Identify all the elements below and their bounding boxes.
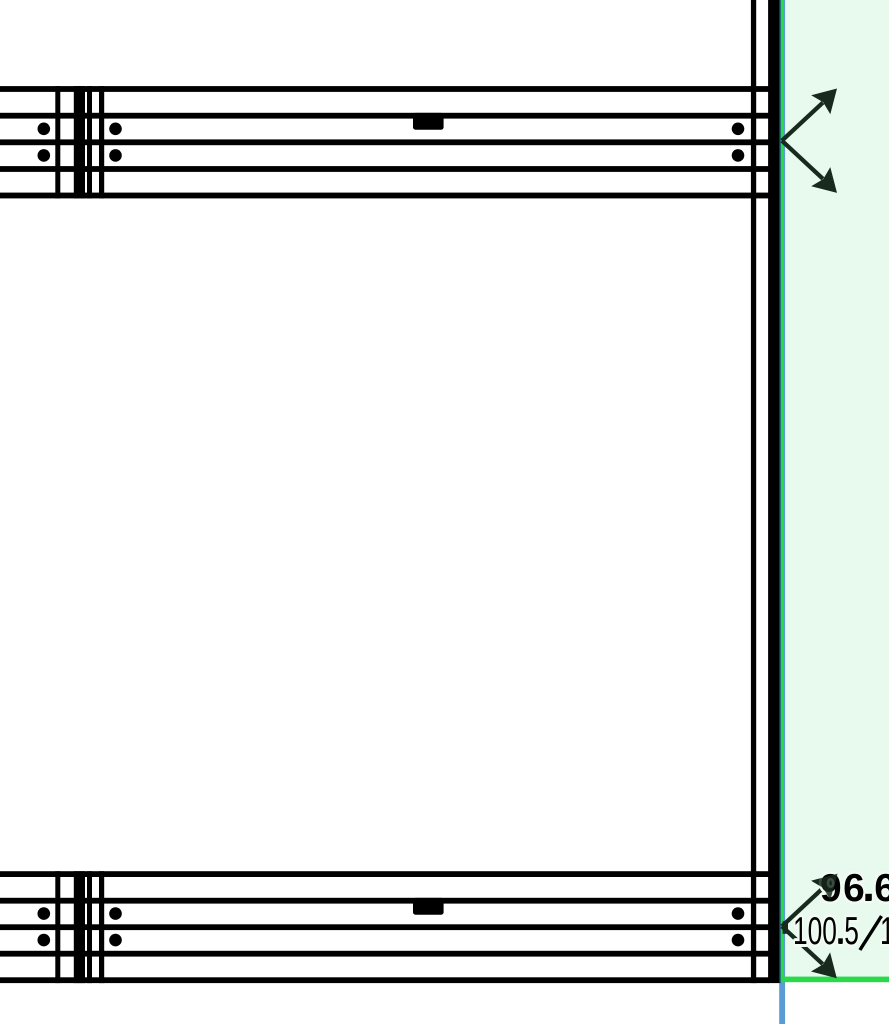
svg-text:100.5: 100.5 (793, 910, 859, 953)
svg-text:.6: .6 (863, 867, 889, 910)
svg-text:1: 1 (880, 910, 889, 953)
